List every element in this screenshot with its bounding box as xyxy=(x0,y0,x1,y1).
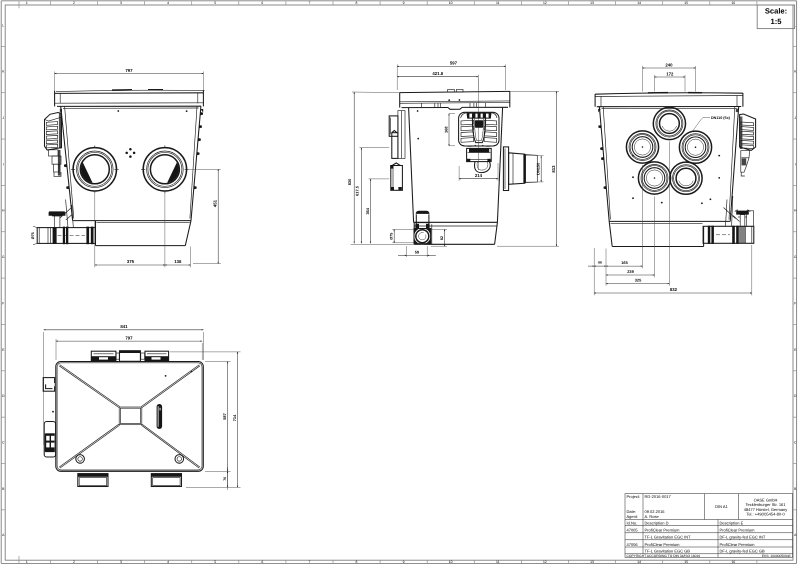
svg-text:6: 6 xyxy=(261,560,263,564)
svg-text:Ø75: Ø75 xyxy=(389,233,393,240)
svg-text:14: 14 xyxy=(637,560,641,564)
svg-text:Description E: Description E xyxy=(720,521,744,526)
svg-text:10: 10 xyxy=(449,1,453,5)
svg-text:RD-2016-0017: RD-2016-0017 xyxy=(645,494,672,499)
svg-text:239: 239 xyxy=(627,269,634,274)
svg-text:5: 5 xyxy=(214,1,216,5)
svg-text:DN150: DN150 xyxy=(535,163,540,175)
svg-text:364: 364 xyxy=(365,207,370,214)
svg-text:Id.No.: Id.No. xyxy=(627,521,638,526)
svg-text:15: 15 xyxy=(684,1,688,5)
svg-text:2: 2 xyxy=(73,1,75,5)
svg-text:240: 240 xyxy=(665,62,673,67)
svg-text:82: 82 xyxy=(440,236,444,240)
svg-text:375: 375 xyxy=(127,259,135,264)
svg-text:ProfiClear Premium: ProfiClear Premium xyxy=(720,528,756,533)
svg-text:DF-L gravity-fed EGC INT: DF-L gravity-fed EGC INT xyxy=(720,535,766,540)
svg-text:1: 1 xyxy=(26,560,28,564)
svg-text:Tel.: +49(0)5454-80-0: Tel.: +49(0)5454-80-0 xyxy=(746,512,785,517)
svg-text:ProfiClear Premium: ProfiClear Premium xyxy=(645,542,681,547)
svg-text:F: F xyxy=(2,301,4,305)
svg-text:9: 9 xyxy=(403,1,405,5)
svg-text:5: 5 xyxy=(214,560,216,564)
svg-text:841: 841 xyxy=(120,324,128,329)
svg-text:325: 325 xyxy=(635,278,642,283)
svg-text:1: 1 xyxy=(26,1,28,5)
svg-text:587: 587 xyxy=(222,413,227,420)
svg-text:6: 6 xyxy=(261,1,263,5)
svg-text:3: 3 xyxy=(120,1,122,5)
svg-text:Project:: Project: xyxy=(627,494,641,499)
svg-text:I: I xyxy=(3,162,4,166)
svg-text:451: 451 xyxy=(213,199,218,207)
svg-text:7: 7 xyxy=(308,1,310,5)
svg-text:TF-L Gravitation EGC GB: TF-L Gravitation EGC GB xyxy=(645,549,691,554)
svg-text:4: 4 xyxy=(167,1,169,5)
svg-text:11: 11 xyxy=(496,560,500,564)
svg-text:813: 813 xyxy=(551,165,556,173)
svg-text:714: 714 xyxy=(232,414,237,421)
svg-text:12: 12 xyxy=(543,560,547,564)
svg-text:A. Rose: A. Rose xyxy=(645,514,660,519)
svg-text:Ø75: Ø75 xyxy=(31,232,35,239)
svg-text:1:5: 1:5 xyxy=(771,17,783,26)
svg-text:DF-L gravity-fed EGC GB: DF-L gravity-fed EGC GB xyxy=(720,549,766,554)
svg-text:Description D: Description D xyxy=(645,521,669,526)
svg-text:15: 15 xyxy=(684,560,688,564)
svg-text:14: 14 xyxy=(637,1,641,5)
svg-text:I: I xyxy=(795,162,796,166)
svg-text:TF-L Gravitation EGC INT: TF-L Gravitation EGC INT xyxy=(645,535,692,540)
svg-text:2: 2 xyxy=(73,560,75,564)
svg-text:3: 3 xyxy=(120,560,122,564)
svg-text:7: 7 xyxy=(308,560,310,564)
svg-text:G: G xyxy=(794,255,797,259)
svg-text:Agent:: Agent: xyxy=(627,514,639,519)
svg-text:13: 13 xyxy=(590,560,594,564)
svg-text:11: 11 xyxy=(496,1,500,5)
svg-text:8: 8 xyxy=(356,1,358,5)
svg-text:47005: 47005 xyxy=(627,528,639,533)
svg-text:9: 9 xyxy=(403,560,405,564)
svg-text:EKS: 10000050948: EKS: 10000050948 xyxy=(762,554,791,558)
svg-text:L: L xyxy=(2,23,4,27)
svg-text:4: 4 xyxy=(167,560,169,564)
svg-text:597: 597 xyxy=(450,61,458,66)
svg-text:ProfiClear Premium: ProfiClear Premium xyxy=(645,528,681,533)
svg-text:214: 214 xyxy=(475,173,483,178)
svg-text:832: 832 xyxy=(670,287,678,292)
svg-text:617.5: 617.5 xyxy=(355,185,360,196)
svg-text:76: 76 xyxy=(223,477,227,481)
svg-text:16: 16 xyxy=(731,1,735,5)
svg-text:172: 172 xyxy=(666,71,674,76)
svg-text:DIN A1: DIN A1 xyxy=(715,504,728,509)
svg-text:165: 165 xyxy=(621,260,628,265)
svg-text:COPYRIGHT ACCORDING TO DIN 34/: COPYRIGHT ACCORDING TO DIN 34/ISO 16016 xyxy=(627,554,701,558)
svg-text:830: 830 xyxy=(347,179,352,186)
svg-text:13: 13 xyxy=(590,1,594,5)
svg-text:F: F xyxy=(794,301,796,305)
svg-text:797: 797 xyxy=(125,68,133,73)
svg-text:16: 16 xyxy=(731,560,735,564)
svg-text:J: J xyxy=(794,116,796,120)
svg-text:Scale:: Scale: xyxy=(765,7,787,16)
svg-text:168: 168 xyxy=(443,126,448,133)
svg-text:G: G xyxy=(2,255,5,259)
svg-text:47006: 47006 xyxy=(627,542,639,547)
svg-text:66: 66 xyxy=(598,261,602,265)
svg-text:797: 797 xyxy=(125,335,133,340)
svg-text:8: 8 xyxy=(356,560,358,564)
svg-text:421.8: 421.8 xyxy=(432,71,443,76)
svg-text:138: 138 xyxy=(174,259,182,264)
svg-text:J: J xyxy=(2,116,4,120)
svg-text:ProfiClear Premium: ProfiClear Premium xyxy=(720,542,756,547)
svg-text:10: 10 xyxy=(449,560,453,564)
svg-text:12: 12 xyxy=(543,1,547,5)
svg-text:DN110 (5x): DN110 (5x) xyxy=(711,116,731,120)
